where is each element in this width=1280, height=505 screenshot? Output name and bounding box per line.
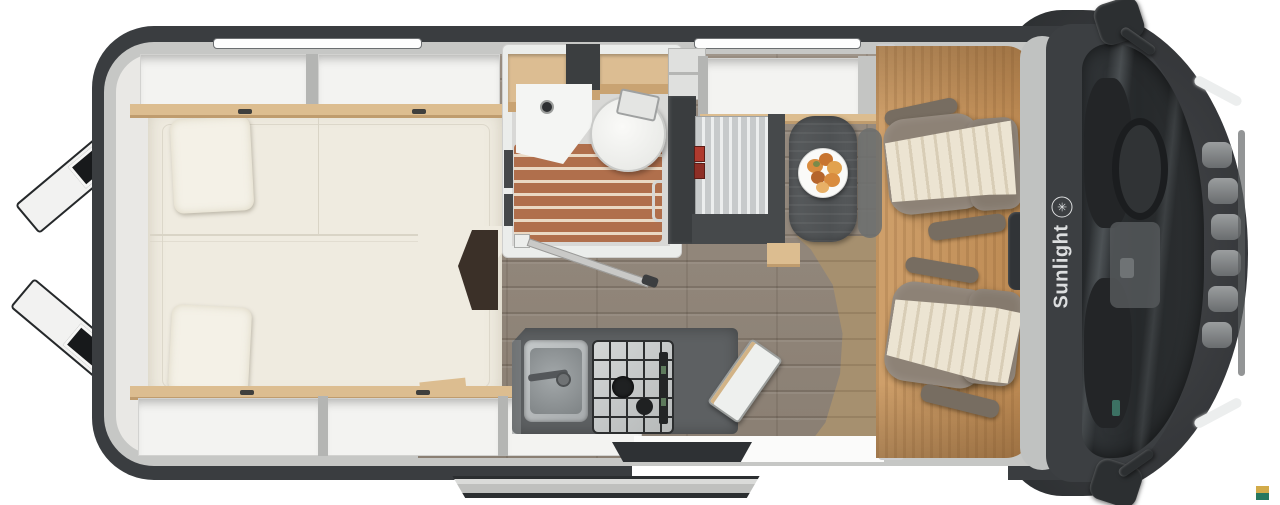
- rear-side-window: [213, 38, 422, 49]
- bathroom-wall-niche-2: [504, 194, 513, 226]
- bed-side-step: [418, 226, 448, 392]
- bathroom-shelf-right: [600, 54, 670, 94]
- front-nose-highlight: [1238, 130, 1245, 376]
- cabinet-handle: [416, 390, 430, 395]
- pillow-bottom: [168, 304, 252, 396]
- front-grille-slat: [1208, 286, 1238, 312]
- dinette-side-window: [694, 38, 861, 49]
- watermark-bottom-square: [1256, 493, 1269, 500]
- steering-wheel: [1112, 118, 1168, 220]
- bathroom-wall-niche: [504, 150, 513, 188]
- food-garnish: [813, 161, 820, 167]
- food-item: [816, 182, 829, 193]
- stove-knob: [661, 366, 666, 374]
- cabinet-handle: [412, 109, 426, 114]
- overhead-cabinet-bottom-mid: [326, 398, 500, 456]
- dashboard-indicator: [1112, 400, 1120, 416]
- stove-burner-small: [636, 398, 653, 415]
- entry-step: [612, 442, 752, 462]
- dinette-bench-cushion: [695, 116, 770, 218]
- front-grille-slat: [1211, 214, 1241, 240]
- pillow-top: [170, 116, 255, 214]
- sink-drain: [540, 100, 554, 114]
- dashboard-console: [1110, 222, 1160, 308]
- food-plate: [798, 148, 848, 198]
- watermark-top-square: [1256, 486, 1269, 493]
- overhead-cabinet-top-left: [140, 54, 308, 110]
- kitchen-faucet-base: [556, 372, 571, 387]
- seatbelt-buckle-2: [694, 163, 705, 179]
- overhead-cabinet-top-right: [318, 54, 500, 110]
- dinette-step: [767, 243, 800, 267]
- stove-control-strip: [659, 352, 668, 424]
- overhead-cabinet-top-trim: [130, 104, 504, 118]
- stove-burner-large: [612, 376, 634, 398]
- brand-logo-text: Sunlight: [1051, 224, 1074, 308]
- overhead-cabinet-bottom-divider-2: [498, 396, 508, 456]
- camper-van-floorplan: Sunlight ✳: [0, 0, 1280, 505]
- seatbelt-buckle: [694, 146, 705, 162]
- overhead-cabinet-bottom-divider: [318, 396, 328, 456]
- brand-logo-icon: ✳: [1052, 196, 1073, 217]
- front-grille-slat: [1211, 250, 1241, 276]
- front-grille-slat: [1208, 178, 1238, 204]
- front-grille-slat: [1202, 322, 1232, 348]
- front-grille-slat: [1202, 142, 1232, 168]
- kitchen-counter-edge: [512, 340, 521, 434]
- cabinet-handle: [238, 109, 252, 114]
- dinette-overhead-left-panel: [698, 56, 708, 118]
- brand-logo: Sunlight ✳: [1038, 140, 1086, 364]
- swivel-seat-edge: [858, 128, 882, 238]
- cabinet-handle: [240, 390, 254, 395]
- dinette-overhead-cabinet: [706, 58, 860, 116]
- sliding-door-panel: [446, 476, 766, 498]
- dinette-bench-frame-bottom: [692, 214, 785, 244]
- stove-knob-2: [661, 398, 666, 406]
- dashboard-detail: [1120, 258, 1134, 278]
- overhead-cabinet-bottom-left: [138, 398, 320, 456]
- mattress-split-seam: [318, 114, 319, 234]
